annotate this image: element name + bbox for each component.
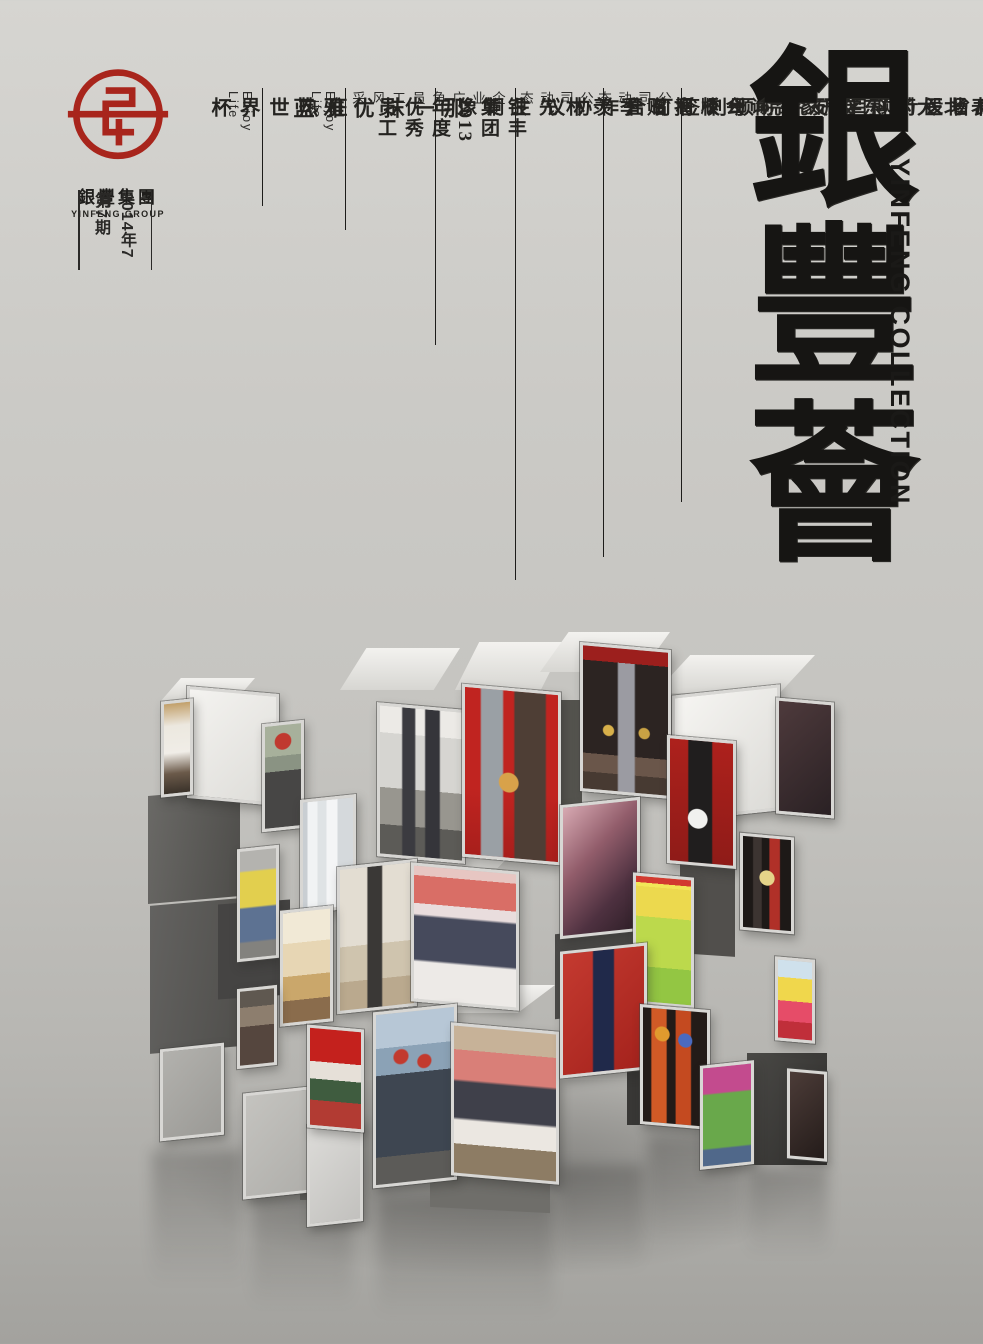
issue-block: 2014年7月 第7期 — [78, 190, 152, 270]
photo-minions-poster — [775, 956, 815, 1043]
floor-reflection — [558, 1165, 643, 1290]
photo-signing-ceremony — [411, 862, 519, 1010]
cube-face-glossy-maroon — [560, 797, 640, 939]
cube-face-blank-gray — [307, 1119, 363, 1227]
photo-host-red — [667, 735, 736, 869]
cube-face-blank-gray — [160, 1043, 224, 1142]
floor-reflection — [378, 1195, 553, 1340]
photo-signing-table — [451, 1022, 559, 1184]
cube-face-dark-maroon — [776, 697, 834, 818]
floor-reflection — [748, 1168, 828, 1273]
photo-man-red-cap — [262, 720, 304, 832]
photo-agreement-red — [307, 1025, 364, 1133]
photo-woman-green — [700, 1060, 754, 1170]
cube-side-dark — [148, 788, 240, 904]
magazine-cover-page: { "brand": { "logo_text_cn": "銀豐集團", "lo… — [0, 0, 983, 1344]
toc-rule — [681, 88, 683, 502]
photo-hostess-stage — [580, 642, 671, 799]
toc-rule — [515, 88, 517, 580]
cube-face-dark-brown — [787, 1068, 827, 1161]
issue-rule-left — [78, 190, 80, 270]
photo-speaker-stage — [560, 942, 647, 1078]
photo-woman-yellow — [237, 845, 279, 962]
photo-office-visit — [337, 859, 417, 1014]
floor-reflection — [152, 1150, 242, 1310]
issue-rule-right — [151, 190, 153, 270]
photo-bust-donation — [462, 684, 561, 866]
photo-office-desk — [161, 698, 193, 797]
toc-headline: 狂热世界杯 — [205, 97, 350, 120]
masthead-english: YINFENG COLLECTION — [884, 158, 915, 638]
masthead-calligraphy: 銀豐薈 — [726, 38, 905, 668]
cube-top-face — [655, 655, 815, 693]
issue-number: 第7期 — [88, 192, 112, 236]
toc-rule — [603, 88, 605, 557]
photo-singer — [237, 985, 277, 1069]
photo-canteen — [280, 905, 333, 1027]
photo-hardhats — [373, 1004, 457, 1189]
yinfeng-logo-icon — [66, 62, 170, 174]
photo-stage-award — [740, 833, 794, 935]
photo-executives-office — [377, 702, 465, 864]
cube-top-face — [340, 648, 460, 690]
